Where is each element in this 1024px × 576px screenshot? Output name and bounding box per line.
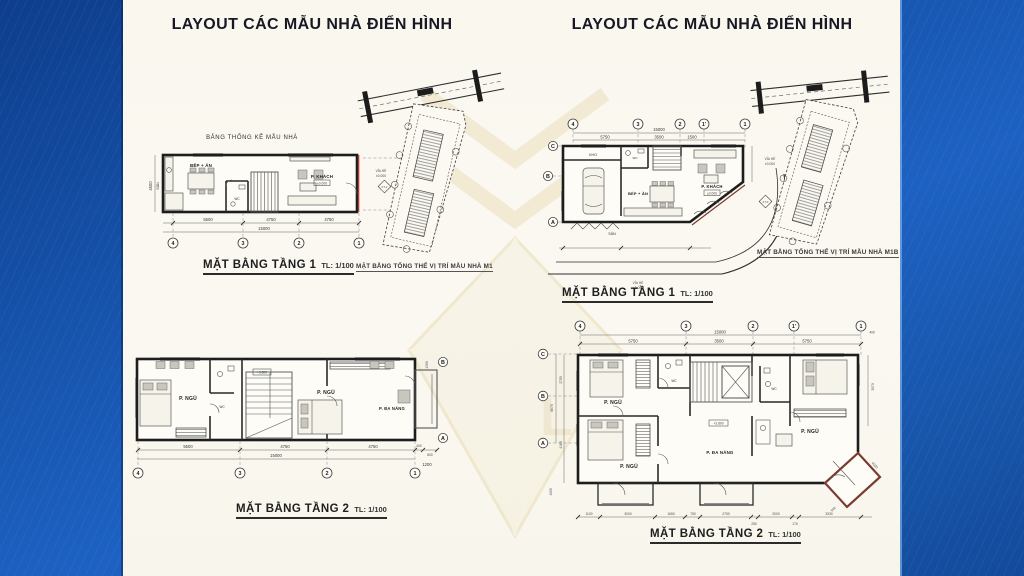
svg-text:B: B	[546, 174, 550, 180]
svg-text:3: 3	[685, 324, 688, 330]
room-label: WC	[771, 387, 777, 391]
dim: 400	[416, 444, 422, 448]
right-title: LAYOUT CÁC MẪU NHÀ ĐIỂN HÌNH	[550, 16, 874, 34]
svg-text:±0.000: ±0.000	[707, 191, 717, 195]
dim: 1300	[425, 361, 429, 369]
room-label: SÂN	[608, 232, 616, 236]
bed	[590, 360, 623, 397]
corner-bay-window	[825, 453, 880, 507]
dim: 1000	[549, 488, 553, 496]
room-label: P. NGỦ	[604, 399, 622, 406]
svg-text:+3.800: +3.800	[257, 371, 267, 375]
room-label-san: SÂN	[156, 182, 160, 190]
dim: 4750	[280, 444, 290, 449]
svg-text:3: 3	[239, 471, 242, 477]
dim: 3070	[871, 383, 875, 391]
dim: 4750	[368, 444, 378, 449]
grid-bubbles: 4 3 2 1	[168, 238, 364, 248]
svg-text:A: A	[551, 220, 555, 226]
dim: 5500	[183, 444, 193, 449]
svg-text:1': 1'	[792, 324, 796, 330]
room-label: P. NGỦ	[317, 389, 335, 396]
left-plan2-caption: MẶT BẰNG TẦNG 2TL: 1/100	[236, 503, 387, 519]
right-floor-plan-2: 4 3 2 1' 1 15000 400 5750 3500 5750 C B …	[528, 316, 898, 534]
svg-text:3: 3	[637, 122, 640, 128]
dim: 250	[751, 522, 757, 526]
svg-text:B: B	[541, 394, 545, 400]
room-label: KHO	[589, 153, 597, 157]
left-site-plan	[376, 56, 516, 264]
svg-text:±0.000: ±0.000	[317, 181, 327, 185]
svg-text:C: C	[551, 144, 555, 150]
svg-text:B: B	[441, 360, 445, 366]
dim: 400	[869, 331, 875, 335]
svg-text:2: 2	[679, 122, 682, 128]
room-label-wc: WC	[234, 197, 240, 201]
svg-text:1: 1	[358, 241, 361, 247]
dim: 5750	[628, 339, 638, 344]
dim: 6670	[550, 404, 554, 412]
dim: 800	[427, 453, 433, 457]
svg-text:KT-3: KT-3	[763, 200, 769, 204]
dim-left: 4500	[148, 181, 153, 191]
right-site-plan	[770, 56, 900, 252]
room-label: WC	[633, 156, 639, 160]
svg-text:1: 1	[860, 324, 863, 330]
dim: 1650	[667, 512, 675, 516]
bed	[803, 360, 847, 394]
right-siteplan-caption: MẶT BẰNG TỔNG THỂ VỊ TRÍ MẪU NHÀ M1B	[757, 249, 899, 258]
dim: 750	[690, 512, 696, 516]
dim: 1200	[422, 462, 432, 467]
right-floor-plan-1: 4 3 2 1' 1 15000 5750 3500 1500 C B A KH…	[526, 96, 802, 296]
dim: 3500	[714, 339, 724, 344]
svg-text:1': 1'	[702, 122, 706, 128]
dim: 5750	[600, 135, 610, 140]
sidewalk-label: VỈA HÈ	[633, 280, 644, 285]
svg-text:1: 1	[744, 122, 747, 128]
dim-total: 15000	[258, 226, 270, 231]
dim: 5750	[802, 339, 812, 344]
dim-total: 15000	[714, 330, 726, 335]
left-title: LAYOUT CÁC MẪU NHÀ ĐIỂN HÌNH	[150, 16, 474, 34]
dim: 2700	[559, 376, 563, 384]
left-plan1-caption: MẶT BẰNG TẦNG 1TL: 1/100	[203, 259, 354, 275]
dim: 4750	[324, 217, 334, 222]
svg-text:A: A	[441, 436, 445, 442]
dim: 5500	[203, 217, 213, 222]
bed	[588, 420, 623, 460]
room-label: P. NGỦ	[620, 463, 638, 470]
left-floor-plan-2: P. NGỦ WC P. NGỦ P. ĐA NĂNG +3.800 5500 …	[130, 338, 450, 498]
right-plan1-caption: MẶT BẰNG TẦNG 1TL: 1/100	[562, 287, 713, 303]
dim: 3330	[825, 512, 833, 516]
brochure-page: { "watermark": { "text": "LUXURY" }, "le…	[0, 0, 1024, 576]
svg-text:3: 3	[242, 241, 245, 247]
dim: 3500	[654, 135, 664, 140]
svg-text:2: 2	[298, 241, 301, 247]
bed	[140, 380, 171, 426]
right-plan2-caption: MẶT BẰNG TẦNG 2TL: 1/100	[650, 528, 801, 544]
room-label: P. KHÁCH	[701, 184, 722, 189]
svg-text:4: 4	[137, 471, 140, 477]
svg-text:1: 1	[414, 471, 417, 477]
bay-window	[598, 483, 653, 505]
room-label: WC	[671, 379, 677, 383]
room-label-bep: BẾP + ĂN	[190, 163, 212, 168]
room-label: P. NGỦ	[801, 428, 819, 435]
bed	[298, 400, 342, 434]
dim-total: 15000	[270, 453, 282, 458]
svg-text:+3.800: +3.800	[713, 422, 723, 426]
svg-text:4: 4	[579, 324, 582, 330]
svg-text:2: 2	[752, 324, 755, 330]
svg-text:4: 4	[572, 122, 575, 128]
dim: 4750	[266, 217, 276, 222]
room-label: WC	[219, 405, 225, 409]
svg-text:A: A	[541, 441, 545, 447]
svg-text:4: 4	[172, 241, 175, 247]
grid-bubbles: 4 3 2 1	[133, 468, 420, 478]
table-header: BẢNG THỐNG KÊ MẪU NHÀ	[206, 133, 298, 141]
dim: 1500	[687, 135, 697, 140]
drawing-sheet: LUXURY LAYOUT CÁC MẪU NHÀ ĐIỂN HÌNH BẢNG…	[123, 0, 900, 576]
room-label: P. ĐA NĂNG	[706, 450, 734, 455]
dim-total: 15000	[653, 127, 665, 132]
bay-window	[700, 483, 753, 505]
dim: 2750	[722, 512, 730, 516]
room-label: BẾP + ĂN	[628, 191, 648, 196]
svg-text:2: 2	[326, 471, 329, 477]
dim: 1100	[585, 512, 592, 516]
svg-text:C: C	[541, 352, 545, 358]
dim: 4160	[559, 441, 563, 449]
room-label-khach: P. KHÁCH	[311, 174, 333, 179]
left-siteplan-caption: MẶT BẰNG TỔNG THỂ VỊ TRÍ MẪU NHÀ M1	[356, 263, 493, 272]
room-label: P. ĐA NĂNG	[379, 406, 405, 411]
dim: 2000	[772, 512, 780, 516]
dim: 170	[792, 522, 798, 526]
dim: 3000	[624, 512, 632, 516]
room-label: P. NGỦ	[179, 395, 197, 402]
